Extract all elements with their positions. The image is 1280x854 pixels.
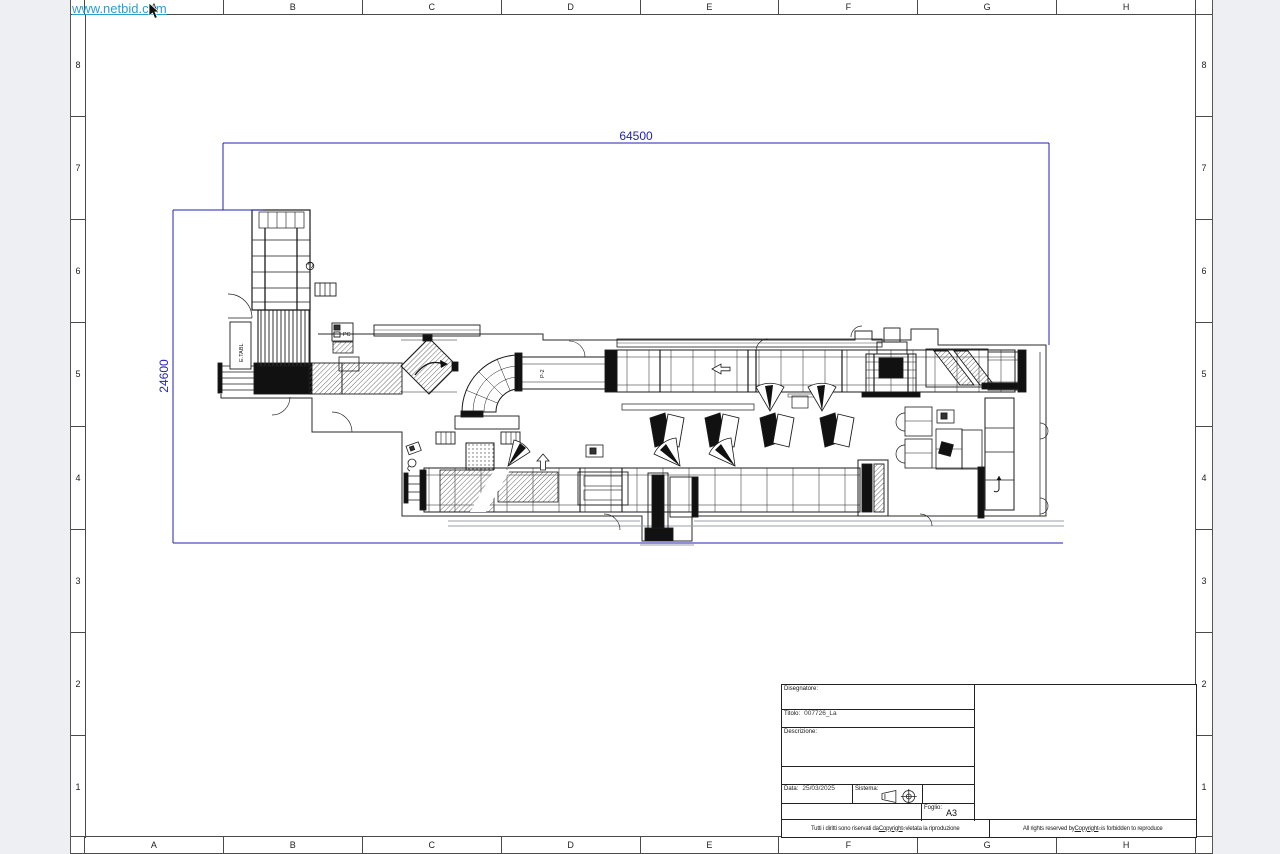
mouse-cursor: [148, 2, 161, 21]
titolo-label: Titolo:: [782, 710, 800, 717]
foglio-label: Foglio:: [922, 804, 942, 811]
sistema-label: Sistema:: [853, 785, 878, 803]
copyright-english: All rights reserved by Copyright© is for…: [990, 820, 1197, 837]
descrizione-label: Descrizione:: [782, 728, 817, 735]
field-descrizione: Descrizione:: [782, 728, 974, 767]
etabl-label: E.TABL: [239, 343, 245, 362]
copyright-italian: Tutti i diritti sono riservati da Copyri…: [782, 820, 990, 837]
field-data-sistema: Data:25/03/2025 Sistema:: [782, 785, 974, 804]
copyright-strip: Tutti i diritti sono riservati da Copyri…: [782, 819, 1196, 837]
data-label: Data:: [782, 785, 798, 792]
first-angle-projection-icon: [880, 789, 922, 804]
foglio-value: A3: [946, 808, 957, 818]
field-sistema: Sistema:: [853, 785, 923, 803]
field-empty: [782, 767, 974, 785]
field-disegnatore: Disegnatore:: [782, 685, 974, 710]
field-empty: [923, 785, 974, 803]
titolo-value: 007726_La: [804, 710, 837, 717]
data-value: 25/03/2025: [802, 785, 835, 792]
title-block-fields: Disegnatore: Titolo:007726_La Descrizion…: [782, 685, 975, 821]
pc-label: PC: [343, 332, 351, 338]
disegnatore-label: Disegnatore:: [782, 685, 818, 692]
title-block: Disegnatore: Titolo:007726_La Descrizion…: [781, 684, 1197, 838]
dimension-height: 24600: [157, 359, 171, 393]
p2-label: P-2: [540, 369, 546, 378]
field-data: Data:25/03/2025: [782, 785, 853, 803]
machinery: [218, 210, 1026, 541]
page: { "watermark": {"text": "www.netbid.com"…: [0, 0, 1280, 854]
dimension-width: 64500: [619, 129, 653, 143]
field-titolo: Titolo:007726_La: [782, 710, 974, 728]
